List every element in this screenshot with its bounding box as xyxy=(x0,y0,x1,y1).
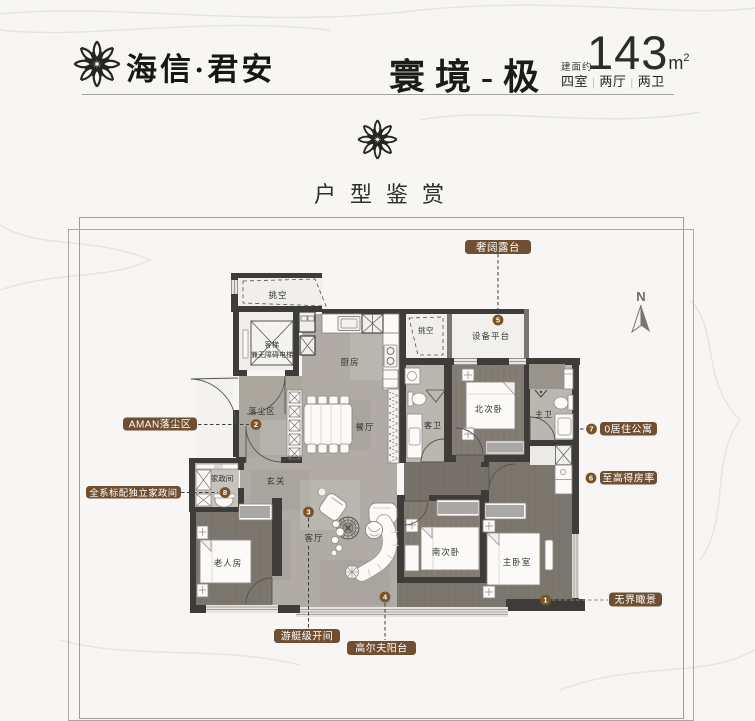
svg-text:兼无障碍电梯: 兼无障碍电梯 xyxy=(251,350,293,359)
svg-text:6: 6 xyxy=(589,474,593,483)
svg-text:游艇级开间: 游艇级开间 xyxy=(281,630,334,643)
svg-text:客厅: 客厅 xyxy=(304,533,323,543)
svg-text:5: 5 xyxy=(496,316,500,325)
svg-text:家政间: 家政间 xyxy=(211,473,234,483)
svg-text:8: 8 xyxy=(223,488,227,497)
svg-text:2: 2 xyxy=(254,420,258,429)
svg-text:北次卧: 北次卧 xyxy=(475,404,504,414)
svg-text:至高得房率: 至高得房率 xyxy=(602,471,655,484)
svg-text:7: 7 xyxy=(589,425,593,434)
svg-text:主卫: 主卫 xyxy=(535,409,553,419)
svg-text:AMAN落尘区: AMAN落尘区 xyxy=(129,419,191,431)
svg-text:餐厅: 餐厅 xyxy=(355,422,374,432)
svg-text:1: 1 xyxy=(543,596,547,605)
svg-text:挑空: 挑空 xyxy=(418,325,434,335)
svg-text:主卧室: 主卧室 xyxy=(503,557,532,567)
svg-text:客梯: 客梯 xyxy=(265,340,280,349)
svg-text:南次卧: 南次卧 xyxy=(432,547,461,557)
svg-text:厨房: 厨房 xyxy=(340,357,359,367)
svg-text:挑空: 挑空 xyxy=(268,290,287,300)
svg-text:老人房: 老人房 xyxy=(214,558,243,568)
svg-text:无界瞰景: 无界瞰景 xyxy=(615,593,657,606)
svg-text:落尘区: 落尘区 xyxy=(249,406,276,416)
svg-text:N: N xyxy=(636,289,645,304)
svg-text:高尔夫阳台: 高尔夫阳台 xyxy=(355,642,408,655)
svg-text:玄关: 玄关 xyxy=(266,476,285,486)
svg-text:3: 3 xyxy=(306,508,310,517)
svg-text:0居住公寓: 0居住公寓 xyxy=(604,422,652,435)
svg-text:客卫: 客卫 xyxy=(424,420,442,430)
svg-text:设备平台: 设备平台 xyxy=(472,331,510,341)
svg-text:奢阔露台: 奢阔露台 xyxy=(476,241,520,254)
svg-text:全系标配独立家政间: 全系标配独立家政间 xyxy=(89,487,177,498)
